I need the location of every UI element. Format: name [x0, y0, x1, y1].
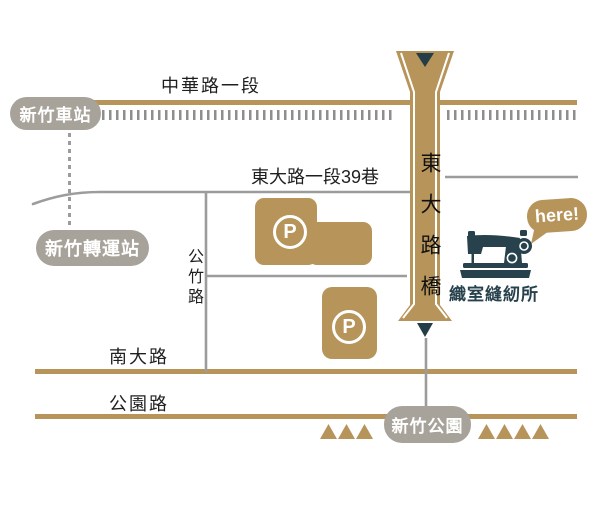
road-label-nanda: 南大路	[109, 343, 169, 369]
road-label-gongzhu: 公竹路	[181, 248, 205, 308]
map-canvas: 中華路一段 東大路一段39巷 公竹路 南大路 公園路 P P 東大路橋 新竹車站…	[0, 0, 600, 510]
train-station-badge: 新竹車站	[10, 97, 101, 130]
parking-block-upper-b	[308, 222, 372, 265]
bridge-arrow-bottom-icon	[417, 323, 433, 337]
station-dotted-path	[68, 133, 71, 228]
parking-letter: P	[342, 316, 355, 339]
bus-terminal-badge: 新竹轉運站	[36, 230, 149, 266]
parking-letter: P	[283, 221, 296, 244]
bridge-label: 東大路橋	[414, 152, 444, 316]
road-dongda-lane-line	[33, 192, 410, 204]
here-bubble-text: here!	[534, 203, 579, 227]
parking-icon: P	[273, 215, 307, 249]
road-label-gongyuan: 公園路	[109, 390, 169, 416]
park-badge: 新竹公園	[384, 406, 471, 443]
parking-icon: P	[332, 310, 366, 344]
destination-name: 織室縫紉所	[446, 280, 542, 305]
sewing-machine-icon	[452, 227, 536, 283]
road-label-zhonghua: 中華路一段	[161, 72, 261, 98]
road-label-dongda-lane: 東大路一段39巷	[251, 163, 379, 189]
